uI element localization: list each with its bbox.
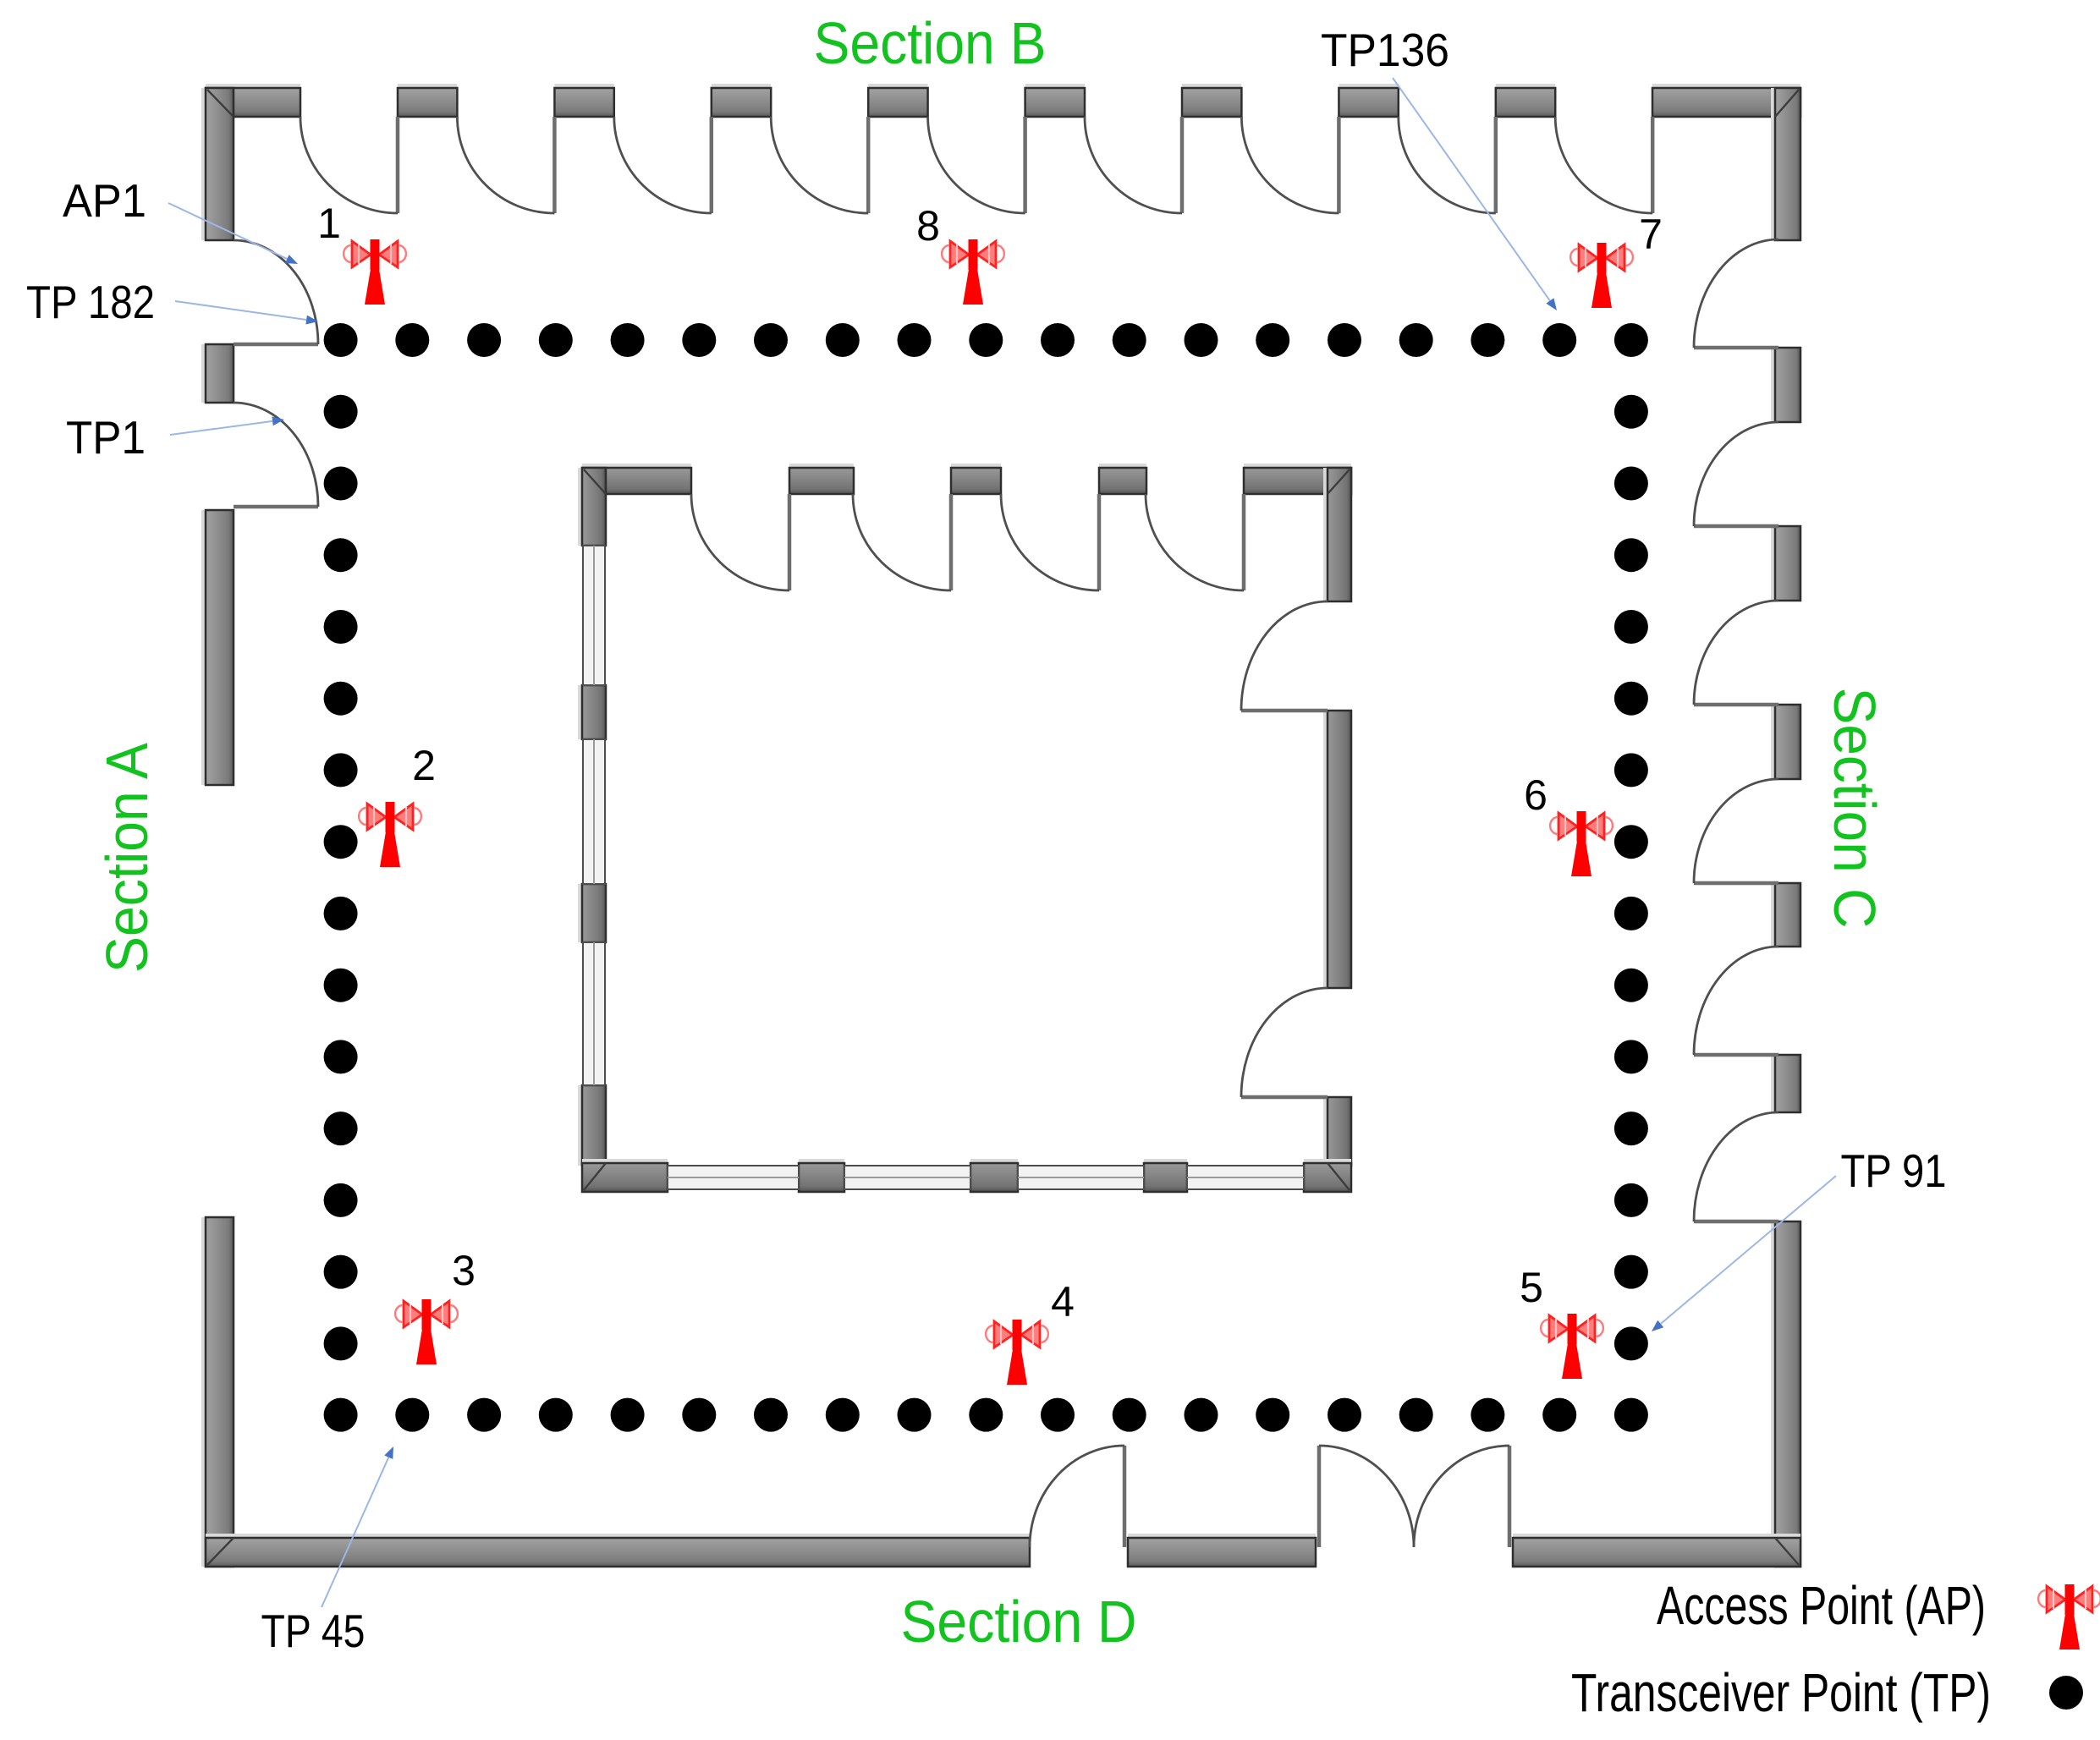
svg-text:TP136: TP136 xyxy=(1321,24,1449,76)
svg-text:TP 91: TP 91 xyxy=(1841,1144,1947,1197)
svg-text:Section C: Section C xyxy=(1822,688,1888,929)
svg-text:1: 1 xyxy=(317,200,341,247)
svg-text:7: 7 xyxy=(1639,211,1663,258)
svg-text:Section B: Section B xyxy=(814,10,1047,76)
svg-text:TP 182: TP 182 xyxy=(26,276,155,328)
svg-text:Transceiver Point (TP): Transceiver Point (TP) xyxy=(1571,1662,1991,1723)
svg-text:Access Point (AP): Access Point (AP) xyxy=(1657,1575,1986,1636)
svg-text:4: 4 xyxy=(1051,1278,1075,1326)
svg-text:TP1: TP1 xyxy=(66,411,146,464)
svg-text:8: 8 xyxy=(916,202,940,250)
svg-text:3: 3 xyxy=(452,1247,476,1294)
svg-text:2: 2 xyxy=(412,742,436,789)
svg-text:Section A: Section A xyxy=(94,743,160,973)
svg-text:6: 6 xyxy=(1524,771,1548,819)
svg-text:Section D: Section D xyxy=(901,1589,1137,1655)
svg-text:AP1: AP1 xyxy=(63,174,146,227)
svg-text:TP 45: TP 45 xyxy=(261,1605,366,1657)
svg-text:5: 5 xyxy=(1520,1264,1543,1311)
